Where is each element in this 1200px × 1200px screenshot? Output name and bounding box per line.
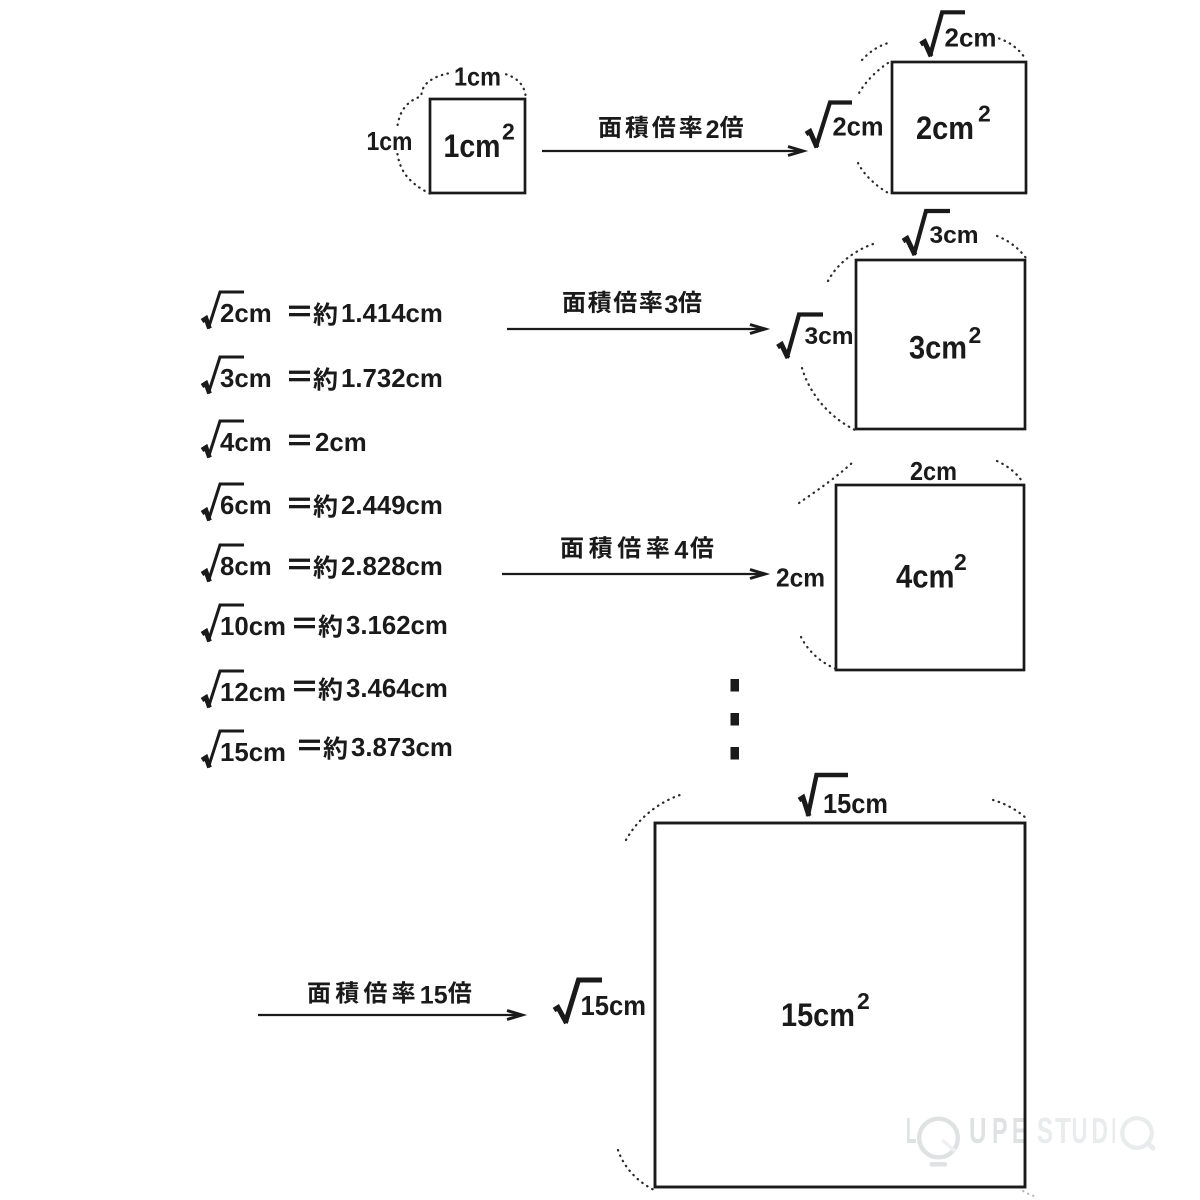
svg-text:2cm: 2cm	[833, 114, 884, 142]
svg-text:S: S	[1037, 1110, 1053, 1151]
svg-text:2: 2	[969, 322, 982, 348]
svg-text:5: 5	[434, 982, 448, 1010]
svg-text:4cm: 4cm	[220, 429, 272, 457]
svg-text:2.828cm: 2.828cm	[341, 553, 443, 581]
svg-text:4: 4	[674, 537, 688, 565]
svg-text:U: U	[1072, 1110, 1088, 1151]
svg-text:15cm: 15cm	[823, 788, 888, 819]
svg-text:I: I	[1112, 1110, 1117, 1151]
svg-text:1cm: 1cm	[454, 62, 501, 92]
svg-text:10cm: 10cm	[220, 613, 286, 641]
svg-text:3cm: 3cm	[930, 222, 979, 249]
svg-text:4cm: 4cm	[896, 559, 955, 595]
svg-text:3cm: 3cm	[909, 330, 967, 366]
svg-text:2: 2	[706, 116, 720, 144]
svg-text:P: P	[992, 1110, 1008, 1151]
svg-text:2: 2	[978, 101, 991, 127]
svg-text:2cm: 2cm	[910, 456, 957, 486]
svg-text:3: 3	[664, 291, 678, 319]
svg-text:2cm: 2cm	[315, 429, 367, 457]
svg-text:L: L	[906, 1110, 917, 1151]
svg-text:1.732cm: 1.732cm	[341, 365, 443, 393]
svg-text:2: 2	[857, 988, 870, 1014]
svg-text:8cm: 8cm	[220, 553, 272, 581]
svg-text:1: 1	[420, 982, 434, 1010]
svg-text:3cm: 3cm	[220, 365, 272, 393]
svg-text:1cm: 1cm	[444, 128, 501, 164]
svg-text:3.162cm: 3.162cm	[346, 612, 448, 640]
svg-text:2.449cm: 2.449cm	[341, 492, 443, 520]
svg-text:3.464cm: 3.464cm	[346, 675, 448, 703]
svg-text:1.414cm: 1.414cm	[341, 300, 443, 328]
svg-text:2: 2	[954, 549, 967, 575]
svg-text:15cm: 15cm	[220, 739, 286, 767]
svg-text:3.873cm: 3.873cm	[351, 734, 453, 762]
svg-text:T: T	[1055, 1110, 1071, 1151]
svg-text:2cm: 2cm	[945, 22, 997, 52]
svg-text:2: 2	[502, 119, 515, 145]
svg-text:1cm: 1cm	[367, 126, 413, 156]
svg-text:U: U	[969, 1110, 987, 1151]
svg-text:2cm: 2cm	[220, 300, 272, 328]
svg-text:12cm: 12cm	[220, 679, 286, 707]
svg-text:6cm: 6cm	[220, 492, 272, 520]
svg-text:2cm: 2cm	[916, 110, 974, 146]
svg-text:D: D	[1092, 1110, 1109, 1151]
svg-text:15cm: 15cm	[781, 997, 855, 1033]
svg-text:15cm: 15cm	[581, 990, 647, 1021]
svg-text:2cm: 2cm	[776, 563, 825, 593]
svg-text:3cm: 3cm	[805, 323, 854, 350]
